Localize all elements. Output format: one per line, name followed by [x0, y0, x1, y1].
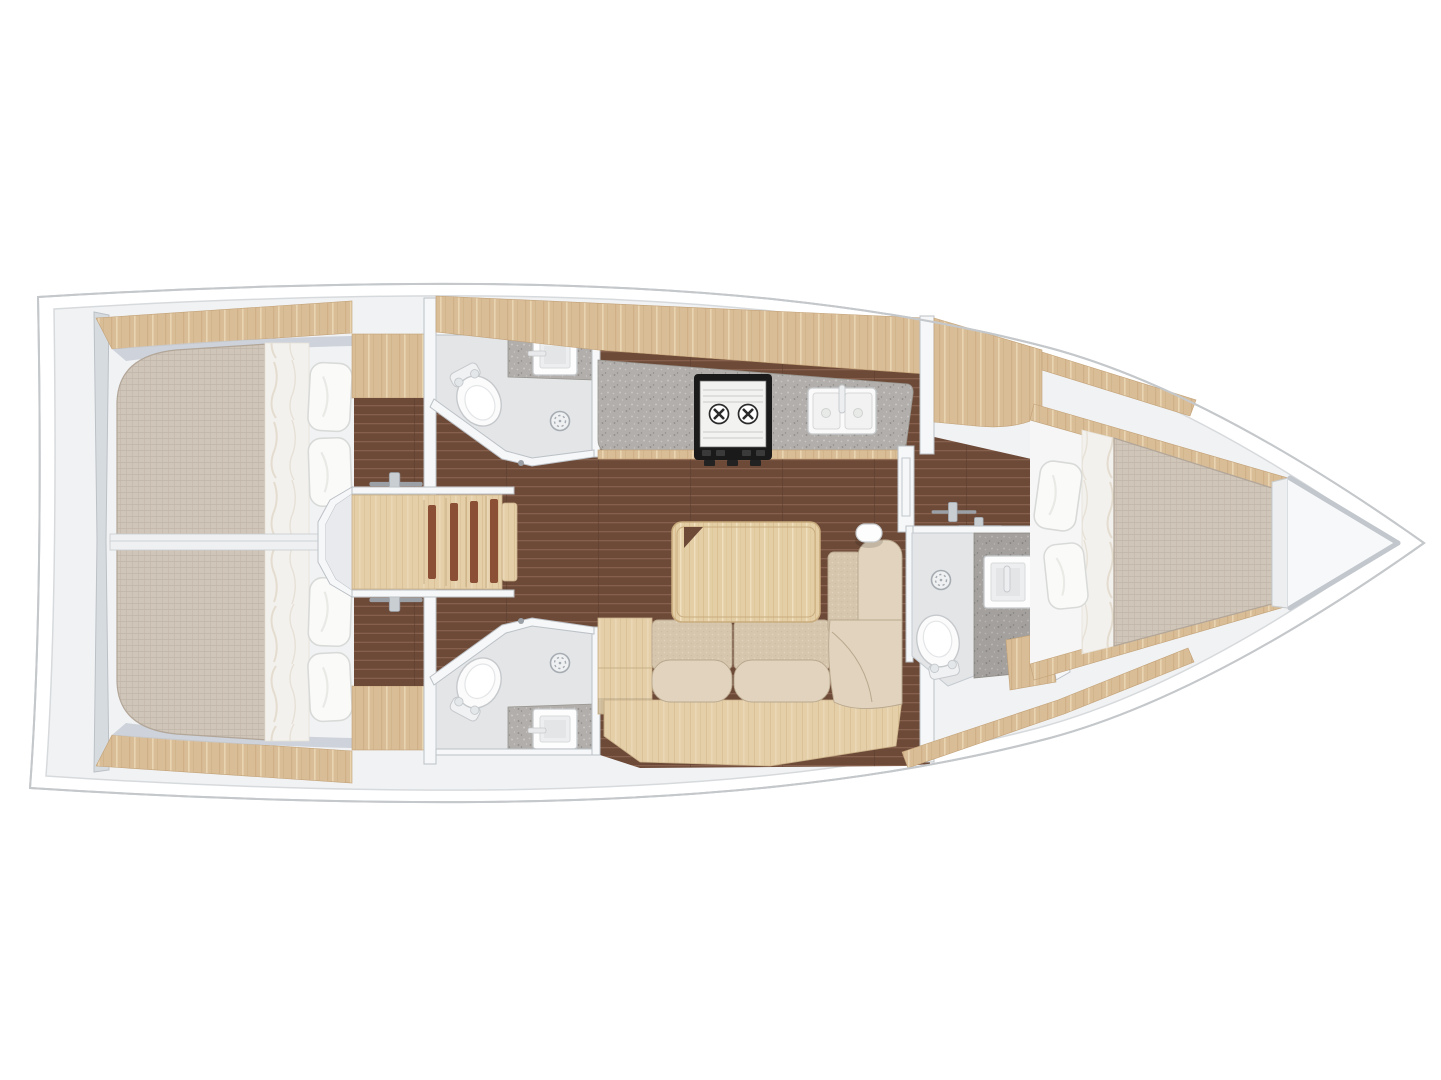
vberth-sheet — [1082, 430, 1114, 654]
pillow — [1043, 542, 1089, 610]
steps — [352, 495, 502, 589]
shower-drain — [932, 571, 951, 590]
mast-post — [855, 524, 883, 548]
shower-drain — [551, 412, 570, 431]
saloon-table — [672, 522, 820, 622]
stove-feet — [704, 460, 761, 466]
basin-faucet — [528, 351, 546, 356]
fwd-wash-basin — [984, 556, 1032, 608]
top-step — [502, 503, 517, 581]
vberth-foot-wall — [1272, 478, 1288, 608]
companionway — [318, 487, 517, 597]
cabin-bulkhead-upper — [424, 298, 436, 490]
burner — [739, 405, 758, 424]
fwd-bulkhead-upper — [920, 316, 934, 454]
berth-sheet — [265, 343, 309, 536]
floor-plan-svg: Sailing yacht interior layout — top-down… — [0, 0, 1441, 1080]
fwd-head-wall-top — [906, 526, 1040, 533]
stove — [694, 374, 772, 466]
fwd-basin-faucet — [1004, 566, 1010, 592]
sink-faucet — [839, 385, 845, 413]
burner — [710, 405, 729, 424]
open-door-leaf — [898, 446, 914, 532]
double-berth-mattress — [117, 344, 268, 536]
companionway-rail-bottom — [352, 590, 514, 597]
galley-sink — [808, 385, 876, 434]
head-door-knob — [518, 460, 524, 466]
pillow — [307, 362, 353, 432]
fwd-cabinet-block — [934, 318, 1042, 427]
pillow — [1032, 459, 1083, 532]
wardrobe — [352, 334, 430, 398]
yacht-floor-plan: Sailing yacht interior layout — top-down… — [0, 0, 1441, 1080]
companionway-rail-top — [352, 487, 514, 494]
